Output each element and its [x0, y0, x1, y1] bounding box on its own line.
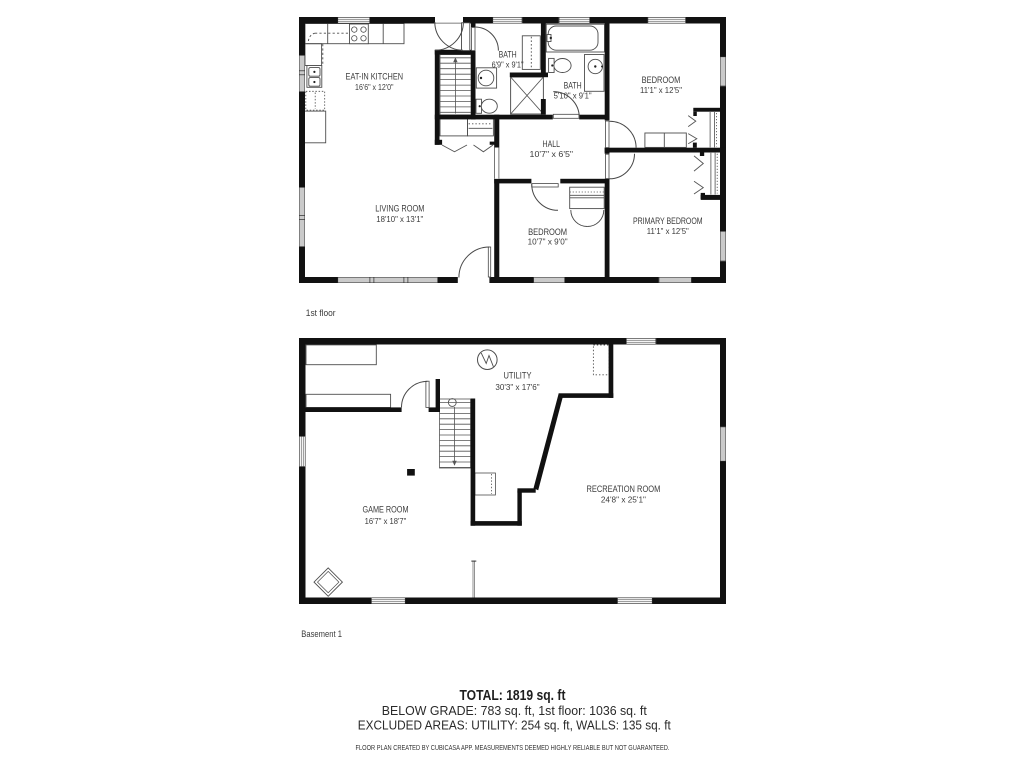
svg-text:1st floor: 1st floor — [306, 308, 336, 318]
svg-text:EXCLUDED AREAS: UTILITY: 254 s: EXCLUDED AREAS: UTILITY: 254 sq. ft, WAL… — [358, 717, 671, 732]
svg-text:Basement 1: Basement 1 — [301, 629, 342, 639]
svg-text:11'1" x 12'5": 11'1" x 12'5" — [640, 85, 682, 95]
svg-text:UTILITY: UTILITY — [504, 371, 532, 381]
svg-text:5'10" x 9'1": 5'10" x 9'1" — [554, 90, 592, 100]
svg-text:BELOW GRADE: 783 sq. ft, 1st f: BELOW GRADE: 783 sq. ft, 1st floor: 1036… — [382, 703, 647, 718]
svg-text:HALL: HALL — [543, 139, 561, 149]
svg-text:18'10" x 13'1": 18'10" x 13'1" — [376, 214, 423, 224]
svg-text:16'6" x 12'0": 16'6" x 12'0" — [355, 82, 394, 92]
svg-text:PRIMARY BEDROOM: PRIMARY BEDROOM — [633, 216, 703, 226]
svg-text:BATH: BATH — [564, 81, 582, 91]
svg-text:BEDROOM: BEDROOM — [642, 75, 681, 85]
svg-text:30'3" x 17'6": 30'3" x 17'6" — [495, 382, 539, 392]
svg-text:TOTAL: 1819 sq. ft: TOTAL: 1819 sq. ft — [460, 688, 566, 704]
svg-text:GAME ROOM: GAME ROOM — [362, 505, 408, 515]
svg-text:LIVING ROOM: LIVING ROOM — [375, 204, 424, 214]
svg-text:24'8" x 25'1": 24'8" x 25'1" — [601, 494, 646, 504]
svg-text:10'7" x 9'0": 10'7" x 9'0" — [528, 236, 568, 246]
svg-text:10'7" x 6'5": 10'7" x 6'5" — [530, 149, 574, 159]
svg-text:EAT-IN KITCHEN: EAT-IN KITCHEN — [346, 72, 404, 82]
svg-text:RECREATION ROOM: RECREATION ROOM — [586, 484, 660, 494]
svg-text:6'9" x 9'1": 6'9" x 9'1" — [492, 60, 524, 70]
svg-text:BATH: BATH — [499, 49, 517, 59]
svg-text:FLOOR PLAN CREATED BY CUBICASA: FLOOR PLAN CREATED BY CUBICASA APP. MEAS… — [356, 745, 670, 752]
svg-text:11'1" x 12'5": 11'1" x 12'5" — [647, 226, 689, 236]
svg-text:16'7" x 18'7": 16'7" x 18'7" — [365, 516, 407, 526]
